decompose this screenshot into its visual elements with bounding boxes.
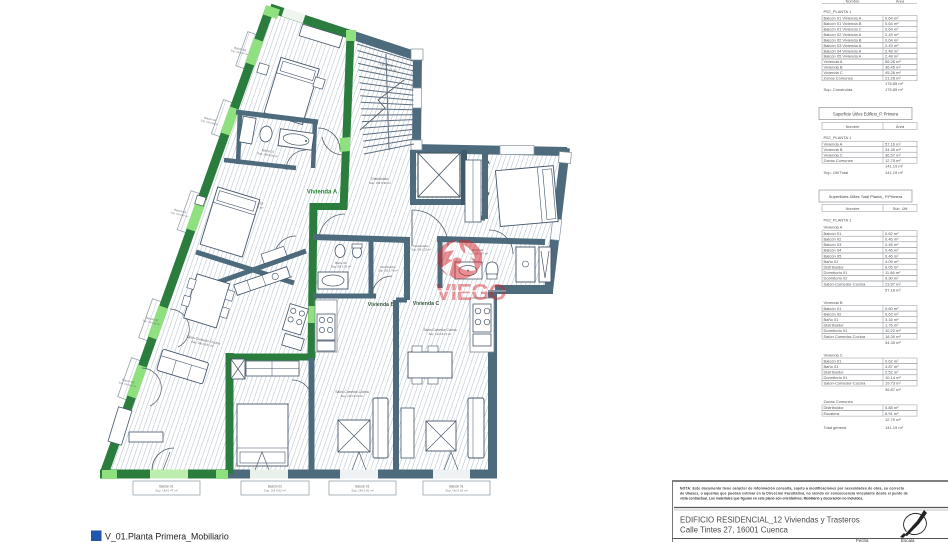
svg-text:Balcón 02: Balcón 02 bbox=[824, 237, 843, 242]
svg-text:34.35 m²: 34.35 m² bbox=[885, 340, 901, 345]
svg-text:Baño 01: Baño 01 bbox=[824, 364, 840, 369]
svg-text:Distribuidor: Distribuidor bbox=[413, 244, 428, 248]
svg-text:Balcón 03: Balcón 03 bbox=[824, 242, 843, 247]
svg-text:21.26 m²: 21.26 m² bbox=[885, 76, 901, 81]
svg-text:Calle Tintes 27, 16001 Cuenca: Calle Tintes 27, 16001 Cuenca bbox=[680, 526, 789, 535]
svg-text:Balcón 01: Balcón 01 bbox=[824, 358, 843, 363]
svg-text:141.19 m²: 141.19 m² bbox=[885, 170, 904, 175]
svg-text:36.45 m²: 36.45 m² bbox=[885, 65, 901, 70]
svg-text:Distribuidor: Distribuidor bbox=[824, 405, 845, 410]
svg-text:10.14 m²: 10.14 m² bbox=[885, 375, 901, 380]
svg-text:Salón-Comedor-Cocina: Salón-Comedor-Cocina bbox=[824, 381, 867, 386]
svg-text:57.16 m²: 57.16 m² bbox=[885, 288, 901, 293]
svg-text:Dormitorio 01: Dormitorio 01 bbox=[824, 375, 849, 380]
svg-text:12.75 m²: 12.75 m² bbox=[885, 158, 901, 163]
svg-text:Vivienda B: Vivienda B bbox=[824, 147, 843, 152]
svg-text:Dormitorio 02: Dormitorio 02 bbox=[824, 276, 849, 281]
svg-text:Sup. Útil 16.72 m²: Sup. Útil 16.72 m² bbox=[429, 331, 451, 336]
svg-text:0.62 m²: 0.62 m² bbox=[885, 358, 899, 363]
svg-text:34.35 m²: 34.35 m² bbox=[885, 147, 901, 152]
svg-text:Dormitorio 01: Dormitorio 01 bbox=[824, 270, 849, 275]
svg-text:Nombre: Nombre bbox=[846, 124, 860, 129]
svg-text:Vivienda C: Vivienda C bbox=[824, 352, 843, 357]
svg-text:Sup. Útil 0.62 m²: Sup. Útil 0.62 m² bbox=[264, 487, 286, 492]
svg-text:de Ukases, o aquellas que pued: de Ukases, o aquellas que puedan estimar… bbox=[680, 492, 908, 496]
svg-text:6.91 m²: 6.91 m² bbox=[885, 411, 899, 416]
svg-text:Distribuidor: Distribuidor bbox=[824, 370, 845, 375]
svg-text:EDIFICIO RESIDENCIAL_12 Vivien: EDIFICIO RESIDENCIAL_12 Viviendas y Tras… bbox=[680, 516, 860, 525]
svg-text:Vivienda B: Vivienda B bbox=[824, 300, 843, 305]
svg-text:Vivienda C: Vivienda C bbox=[824, 70, 843, 75]
svg-text:0.46 m²: 0.46 m² bbox=[885, 237, 899, 242]
svg-text:Balcón 02: Balcón 02 bbox=[824, 311, 843, 316]
svg-text:12.79 m²: 12.79 m² bbox=[885, 417, 901, 422]
svg-text:0.64 m²: 0.64 m² bbox=[885, 26, 899, 31]
svg-text:4.09 m²: 4.09 m² bbox=[885, 259, 899, 264]
svg-text:57.16 m²: 57.16 m² bbox=[885, 141, 901, 146]
svg-text:Sup. Útil 3.16 m²: Sup. Útil 3.16 m² bbox=[331, 265, 351, 269]
svg-text:Total general: Total general bbox=[824, 425, 847, 430]
svg-text:45.26 m²: 45.26 m² bbox=[885, 70, 901, 75]
svg-text:Escalera: Escalera bbox=[824, 411, 840, 416]
svg-text:Vivienda A: Vivienda A bbox=[824, 141, 843, 146]
svg-text:0.62 m²: 0.62 m² bbox=[885, 231, 899, 236]
svg-text:1.76 m²: 1.76 m² bbox=[885, 323, 899, 328]
svg-text:Salón Comedor-Cocina: Salón Comedor-Cocina bbox=[824, 334, 866, 339]
svg-text:Escala: Escala bbox=[901, 538, 915, 542]
svg-text:Área: Área bbox=[896, 0, 905, 4]
svg-text:36.87 m²: 36.87 m² bbox=[885, 387, 901, 392]
svg-text:P02_PLANTA 1: P02_PLANTA 1 bbox=[824, 135, 852, 140]
svg-text:V_01.Planta Primera_Mobiliario: V_01.Planta Primera_Mobiliario bbox=[105, 531, 229, 541]
svg-text:0.64 m²: 0.64 m² bbox=[885, 16, 899, 21]
svg-text:Balcón 05 Vivienda A: Balcón 05 Vivienda A bbox=[824, 54, 862, 59]
svg-text:Distribuidor: Distribuidor bbox=[824, 265, 845, 270]
svg-text:Sup. Útil 0.62 m²: Sup. Útil 0.62 m² bbox=[445, 487, 467, 492]
svg-text:2.49 m²: 2.49 m² bbox=[885, 43, 899, 48]
svg-text:Sup. Útil 0.62 m²: Sup. Útil 0.62 m² bbox=[351, 487, 373, 492]
svg-text:18.30 m²: 18.30 m² bbox=[885, 334, 901, 339]
svg-text:5.88 m²: 5.88 m² bbox=[885, 405, 899, 410]
svg-text:2.48 m²: 2.48 m² bbox=[885, 54, 899, 59]
svg-text:175.85 m²: 175.85 m² bbox=[885, 87, 904, 92]
svg-text:141.19 m²: 141.19 m² bbox=[885, 164, 904, 169]
svg-text:Balcón 02 Vivienda A: Balcón 02 Vivienda A bbox=[824, 32, 862, 37]
svg-text:0.46 m²: 0.46 m² bbox=[885, 242, 899, 247]
svg-text:Área: Área bbox=[896, 124, 905, 129]
svg-text:Balcón 03 Vivienda A: Balcón 03 Vivienda A bbox=[824, 43, 862, 48]
svg-text:Zonas Comunes: Zonas Comunes bbox=[824, 399, 853, 404]
svg-text:141.19 m²: 141.19 m² bbox=[885, 425, 904, 430]
svg-text:2.52 m²: 2.52 m² bbox=[885, 370, 899, 375]
svg-text:2.49 m²: 2.49 m² bbox=[885, 32, 899, 37]
svg-text:175.85 m²: 175.85 m² bbox=[885, 81, 904, 86]
svg-text:0.64 m²: 0.64 m² bbox=[885, 37, 899, 42]
svg-text:10.22 m²: 10.22 m² bbox=[885, 328, 901, 333]
svg-text:Balcón 04 Vivienda A: Balcón 04 Vivienda A bbox=[824, 48, 862, 53]
svg-text:Distribuidor: Distribuidor bbox=[824, 323, 845, 328]
svg-text:Superficie Útiles Edificio_P.: Superficie Útiles Edificio_P. Primera bbox=[833, 111, 899, 116]
svg-text:P02_PLANTA 1: P02_PLANTA 1 bbox=[824, 218, 852, 223]
svg-text:Distribuidor: Distribuidor bbox=[380, 265, 395, 269]
svg-text:P02_PLANTA 1: P02_PLANTA 1 bbox=[824, 9, 852, 14]
svg-text:0.60 m²: 0.60 m² bbox=[885, 306, 899, 311]
svg-text:Vivienda A: Vivienda A bbox=[307, 190, 338, 196]
svg-text:Balcón 01: Balcón 01 bbox=[824, 231, 843, 236]
svg-text:Vivienda C: Vivienda C bbox=[824, 152, 843, 157]
svg-text:Baño 01: Baño 01 bbox=[335, 261, 347, 265]
svg-text:Baño 01: Baño 01 bbox=[824, 259, 840, 264]
svg-text:Sup. Útil 14.33 m²: Sup. Útil 14.33 m² bbox=[341, 393, 363, 398]
svg-text:Sup. Útil 5.36 m²: Sup. Útil 5.36 m² bbox=[369, 180, 391, 185]
svg-text:Balcón 02 Vivienda B: Balcón 02 Vivienda B bbox=[824, 37, 862, 42]
svg-text:Vivienda A: Vivienda A bbox=[824, 59, 843, 64]
svg-text:Dormitorio 01: Dormitorio 01 bbox=[824, 328, 849, 333]
svg-text:Vivienda B: Vivienda B bbox=[368, 302, 395, 308]
svg-text:Balcón 04: Balcón 04 bbox=[824, 248, 843, 253]
svg-text:Superficies Útiles Total Plant: Superficies Útiles Total Planta_ P.Prime… bbox=[829, 194, 903, 199]
svg-text:Nombre: Nombre bbox=[846, 0, 860, 4]
svg-text:NOTA: Este documento tiene car: NOTA: Este documento tiene carácter de i… bbox=[680, 487, 904, 491]
svg-text:Balcón 01: Balcón 01 bbox=[824, 306, 843, 311]
svg-text:Balcón 01 Vivienda B: Balcón 01 Vivienda B bbox=[824, 21, 862, 26]
svg-text:Zonas Comunes: Zonas Comunes bbox=[824, 158, 853, 163]
svg-text:Balcón 01 Vivienda C: Balcón 01 Vivienda C bbox=[824, 26, 862, 31]
svg-text:vista contractual. Los materia: vista contractual. Los materiales que fi… bbox=[680, 497, 863, 501]
svg-text:66.26 m²: 66.26 m² bbox=[885, 59, 901, 64]
svg-text:23.97 m²: 23.97 m² bbox=[885, 281, 901, 286]
svg-text:Vivienda A: Vivienda A bbox=[824, 225, 843, 230]
svg-text:VIEGO: VIEGO bbox=[436, 279, 506, 305]
svg-text:9.30 m²: 9.30 m² bbox=[885, 276, 899, 281]
svg-text:0.64 m²: 0.64 m² bbox=[885, 21, 899, 26]
svg-text:0.62 m²: 0.62 m² bbox=[885, 311, 899, 316]
svg-text:3.87 m²: 3.87 m² bbox=[885, 364, 899, 369]
svg-text:19.73 m²: 19.73 m² bbox=[885, 381, 901, 386]
svg-text:Fecha: Fecha bbox=[856, 538, 869, 542]
svg-text:Baño 01: Baño 01 bbox=[824, 317, 840, 322]
svg-text:Sub. Útil: Sub. Útil bbox=[893, 206, 908, 211]
svg-text:Balcón 05: Balcón 05 bbox=[824, 253, 843, 258]
svg-text:Balcón 01 Vivienda A: Balcón 01 Vivienda A bbox=[824, 16, 862, 21]
svg-text:36.57 m²: 36.57 m² bbox=[885, 152, 901, 157]
svg-text:Sup. Útil Total: Sup. Útil Total bbox=[824, 170, 849, 175]
svg-text:6.05 m²: 6.05 m² bbox=[885, 265, 899, 270]
svg-text:3.16 m²: 3.16 m² bbox=[885, 317, 899, 322]
svg-text:Vivienda B: Vivienda B bbox=[824, 65, 843, 70]
svg-text:Sup. Construida: Sup. Construida bbox=[824, 87, 853, 92]
svg-text:0.46 m²: 0.46 m² bbox=[885, 248, 899, 253]
svg-text:11.86 m²: 11.86 m² bbox=[885, 270, 901, 275]
svg-text:Nombre: Nombre bbox=[846, 206, 860, 211]
svg-text:Zonas Comunes: Zonas Comunes bbox=[824, 76, 853, 81]
svg-text:Sup. Útil 0.47 m²: Sup. Útil 0.47 m² bbox=[155, 487, 177, 492]
svg-text:0.46 m²: 0.46 m² bbox=[885, 253, 899, 258]
svg-text:Salón-Comedor-Cocina: Salón-Comedor-Cocina bbox=[824, 281, 867, 286]
svg-text:2.48 m²: 2.48 m² bbox=[885, 48, 899, 53]
